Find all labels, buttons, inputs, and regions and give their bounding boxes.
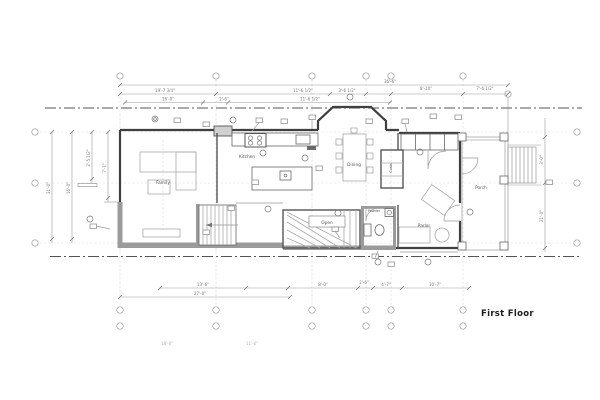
family-sofa [140, 152, 196, 194]
room-label-coats: Coats [389, 163, 393, 173]
dim-bottom-g: 18'-0" [161, 341, 173, 346]
dim-left-c: 2'-5 1/2" [86, 149, 91, 166]
basement-stair [199, 205, 238, 245]
dim-top-e: 7'-6 1/2" [476, 86, 493, 91]
dim-bottom-a: 13'-6" [197, 282, 209, 287]
dim-top-f: 16'-0" [162, 97, 174, 102]
porch-posts [458, 133, 508, 250]
parlor-furniture [399, 185, 455, 243]
door-layer [366, 151, 478, 221]
room-label-powder: Powder [368, 209, 381, 213]
grid-bubbles [32, 73, 580, 329]
parlor-hall-door [428, 151, 446, 169]
room-label-open: Open [321, 220, 333, 226]
room-label-porch: Porch [475, 185, 487, 191]
dim-bottom-f: 27'-0" [194, 291, 206, 296]
kitchen-appliance [296, 135, 310, 144]
sheet-title: First Floor [481, 309, 534, 319]
dim-top-g: 2'-6" [219, 97, 229, 102]
dim-top-total: 36'-6" [384, 79, 396, 84]
room-label-parlor: Parlor [418, 223, 431, 229]
west-ledge [78, 184, 97, 187]
porch-steps [508, 145, 541, 185]
dim-top-a: 19'-7 3/4" [155, 88, 175, 93]
dim-left-d: 7'-1" [102, 163, 107, 173]
room-label-family: Family [156, 180, 170, 186]
dining-set [336, 128, 373, 181]
room-label-dining: Dining [347, 162, 361, 168]
dim-bottom-e: 10'-7" [429, 282, 441, 287]
dim-bottom-b: 8'-0" [318, 282, 328, 287]
dim-right-b: 3'-0" [539, 155, 544, 165]
porch-structure [458, 133, 508, 250]
west-wall-poche [118, 202, 123, 248]
dim-top-c: 3'-6 1/2" [338, 88, 355, 93]
floor-plan-drawing: 36'-6" 19'-7 3/4" 11'-6 1/2" 3'-6 1/2" 8… [0, 0, 600, 400]
dim-right-a: 21'-0" [539, 210, 544, 222]
kitchen-fixtures [232, 133, 318, 190]
floor-plan-sheet: 36'-6" 19'-7 3/4" 11'-6 1/2" 3'-6 1/2" 8… [0, 0, 600, 400]
dim-top-d: 8'-10" [420, 86, 432, 91]
family-console [143, 229, 180, 237]
open-stairwell: Open [283, 210, 360, 248]
range [245, 134, 266, 148]
dim-top-b: 11'-6 1/2" [293, 88, 313, 93]
grid-verticals [120, 80, 463, 306]
grid-layer [32, 73, 582, 329]
dim-left-a: 31'-0" [46, 182, 51, 194]
dim-top-h: 11'-6 1/2" [300, 97, 320, 102]
front-door [462, 158, 478, 174]
porch-deck [462, 137, 508, 250]
dim-left-b: 16'-0" [66, 182, 71, 194]
dim-bottom-d: 4'-7" [381, 282, 391, 287]
kitchen-island [252, 167, 312, 190]
dim-bottom-c: 2'-6" [359, 280, 369, 285]
dim-bottom-h: 11'-6" [246, 341, 258, 346]
window-seat [401, 134, 458, 150]
room-label-kitchen: Kitchen [239, 154, 255, 160]
